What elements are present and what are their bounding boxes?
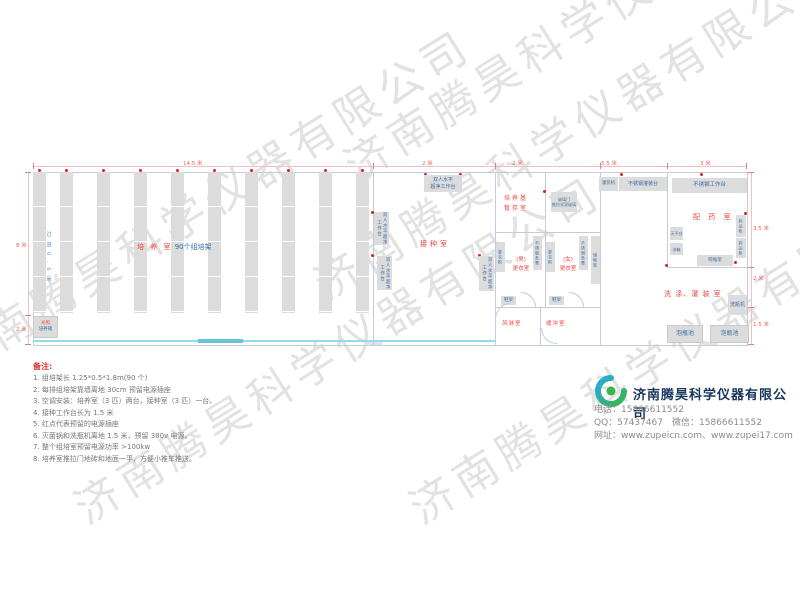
- culture-room-label: 培 养 室 90个组培架: [137, 242, 212, 252]
- medium-storage-label: 培养基 暂存室: [498, 194, 534, 214]
- mens-label-line2: 更衣室: [506, 265, 536, 274]
- dimension-label: 2 米: [512, 159, 523, 167]
- steel-worktable-box: 不锈钢工作台: [672, 178, 747, 193]
- wall: [600, 172, 601, 345]
- womens-label-line2: 更衣室: [553, 265, 583, 274]
- note-item: 1. 组培架长 1.25*0.5*1.8m(90 个): [33, 373, 216, 385]
- power-outlet-dot: [700, 173, 703, 176]
- company-qq-wechat: QQ：57437467 微信：15866611552: [594, 415, 762, 428]
- power-outlet-dot: [324, 169, 327, 172]
- dimension-label: 8 米: [16, 241, 27, 249]
- rack-column: [356, 172, 369, 313]
- company-website: 网址：www.zupeicn.com、www.zupei17.com: [594, 428, 793, 441]
- rack-column: [97, 172, 110, 313]
- power-outlet-dot: [38, 169, 41, 172]
- mens-changing-label: (男) 更衣室: [506, 256, 536, 274]
- sliding-door-line: [33, 340, 495, 342]
- clean-bench-right: 双人水平超净工作台: [479, 256, 494, 291]
- note-item: 4. 接种工作台长为 1.5 米: [33, 408, 216, 420]
- wall: [545, 172, 546, 232]
- fridge-box: 冰箱: [670, 243, 683, 255]
- washing-room-label: 洗 涤、灌 装 室: [664, 289, 722, 299]
- shoe-rack-women: 鞋架: [549, 296, 564, 305]
- aisle-label: 过道0.6米: [44, 231, 52, 311]
- sliding-door-segment: [198, 339, 243, 343]
- wardrobe-men: 更衣柜: [496, 242, 505, 272]
- womens-label-line1: (女): [553, 256, 583, 265]
- wall: [667, 172, 668, 267]
- wall: [373, 172, 374, 345]
- notes-list: 1. 组培架长 1.25*0.5*1.8m(90 个) 2. 每排组培架靠墙离地…: [33, 373, 216, 465]
- light-incubator-line2: 培养箱: [39, 327, 53, 333]
- dimension-label: 5.5 米: [601, 159, 617, 167]
- rack-column: [319, 172, 332, 313]
- dim-line-right: [751, 172, 752, 345]
- dim-line-top: [33, 166, 747, 167]
- rack-column: [60, 172, 73, 313]
- inoculation-room-label: 接种室: [420, 239, 450, 249]
- note-item: 6. 灭菌锅和洗瓶机离地 1.5 米，预留 380v 电源。: [33, 431, 216, 443]
- power-outlet-dot: [287, 169, 290, 172]
- clean-bench-top: 双人水平 超净工作台: [424, 175, 462, 192]
- power-outlet-dot: [361, 169, 364, 172]
- dimension-label: 3 米: [700, 159, 711, 167]
- medium-storage-line2: 暂存室: [498, 204, 534, 214]
- mens-label-line1: (男): [506, 256, 536, 265]
- power-outlet-dot: [139, 169, 142, 172]
- power-outlet-dot: [176, 169, 179, 172]
- power-outlet-dot: [65, 169, 68, 172]
- medium-storage-line1: 培养基: [498, 194, 534, 204]
- note-item: 5. 红点代表预留的电源插座: [33, 419, 216, 431]
- soak-pool-box: 泡瓶池: [667, 325, 703, 343]
- storage-rack: 储物架: [591, 236, 600, 284]
- power-outlet-dot: [371, 254, 374, 257]
- buffer-room-label: 缓冲室: [546, 319, 566, 327]
- company-phone: 电话：15866611552: [594, 402, 684, 415]
- balance-table-box: 天平台: [670, 227, 683, 240]
- power-outlet-dot: [250, 169, 253, 172]
- glass-door-line2: 推拉式双玻璃: [552, 202, 576, 207]
- soak-pool-box: 泡瓶池: [710, 325, 749, 343]
- dimension-label: 2 米: [422, 159, 433, 167]
- culture-room-name: 培 养 室: [137, 243, 172, 251]
- wall: [667, 267, 747, 268]
- bottle-rack-box: 晾瓶架: [697, 255, 733, 266]
- dim-line-left: [28, 172, 29, 345]
- bottle-washer-box: 洗瓶机: [728, 295, 747, 315]
- power-outlet-dot: [543, 190, 546, 193]
- wall: [495, 307, 600, 308]
- light-incubator-box: 光照 培养箱: [33, 316, 58, 338]
- rack-column: [245, 172, 258, 313]
- dimension-label: 2 米: [16, 325, 27, 333]
- glass-door-box: 玻璃门 推拉式双玻璃: [551, 192, 577, 212]
- clean-bench-left-2: 双人水平超净工作台: [377, 256, 392, 290]
- pharmacy-room-label: 配 药 室: [693, 212, 733, 222]
- note-item: 8. 培养室推拉门地砖和地面一平，方便小推车推送。: [33, 454, 216, 466]
- power-outlet-dot: [665, 264, 668, 267]
- dimension-label: 3.5 米: [753, 224, 769, 232]
- womens-changing-label: (女) 更衣室: [553, 256, 583, 274]
- power-outlet-dot: [213, 169, 216, 172]
- floor-plan: 14.5 米 2 米 2 米 5.5 米 3 米 8 米 2 米 3.5 米 2…: [0, 0, 800, 360]
- culture-room-rack-count: 90个组培架: [175, 243, 212, 251]
- clean-bench-left-1: 双人水平超净工作台: [374, 212, 389, 245]
- air-shower-label: 风淋室: [502, 319, 522, 327]
- power-outlet-dot: [102, 169, 105, 172]
- note-item: 7. 整个组培室预留电源功率 >100kw: [33, 442, 216, 454]
- lab-floorplan-page: 济南腾昊科学仪器有限公司 济南腾昊科学仪器有限公司 济南腾昊科学仪器有限公司 济…: [0, 0, 800, 600]
- dimension-label: 2 米: [753, 274, 764, 282]
- notes-title: 备注:: [33, 361, 52, 372]
- clean-bench-line2: 超净工作台: [430, 184, 455, 190]
- dimension-label: 14.5 米: [183, 159, 203, 167]
- filling-table-box: 不锈钢灌装台: [619, 177, 667, 191]
- medicine-cabinet-box: 药品柜: [736, 215, 746, 237]
- medicine-cabinet-box: 药品柜: [736, 238, 746, 258]
- note-item: 2. 每排组培架靠墙离地 30cm 预留电源插座: [33, 385, 216, 397]
- power-outlet-dot: [734, 261, 737, 264]
- power-outlet-dot: [620, 173, 623, 176]
- wall: [495, 232, 600, 233]
- wall: [540, 307, 541, 345]
- rack-column: [282, 172, 295, 313]
- filling-machine-box: 灌装机: [599, 177, 618, 191]
- note-item: 3. 空调安装：培养室（3 匹）两台，接种室（3 匹）一台。: [33, 396, 216, 408]
- dimension-label: 1.5 米: [753, 320, 769, 328]
